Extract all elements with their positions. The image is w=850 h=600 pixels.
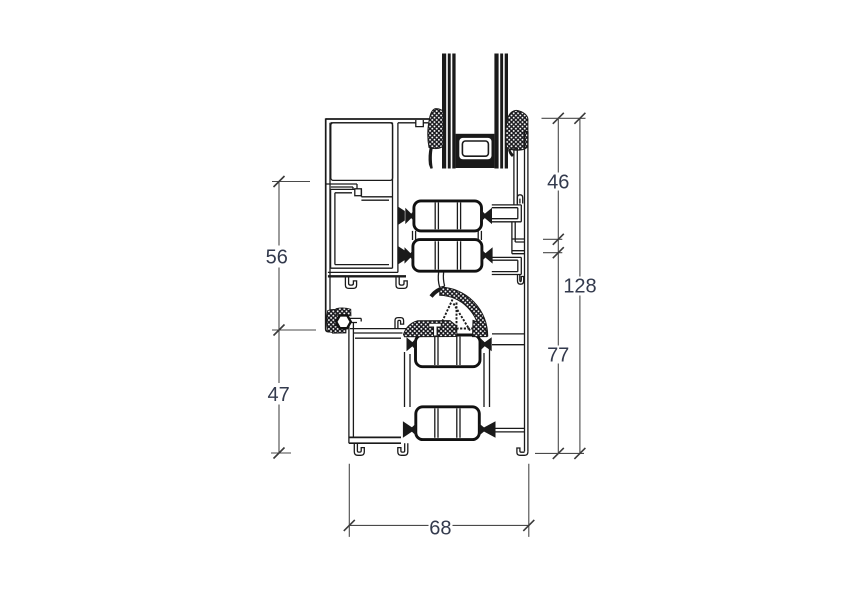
svg-text:77: 77 [547,345,569,367]
svg-text:46: 46 [547,172,569,194]
svg-text:68: 68 [429,518,451,540]
svg-text:128: 128 [563,276,596,298]
svg-text:47: 47 [267,384,289,406]
svg-text:56: 56 [266,247,288,269]
